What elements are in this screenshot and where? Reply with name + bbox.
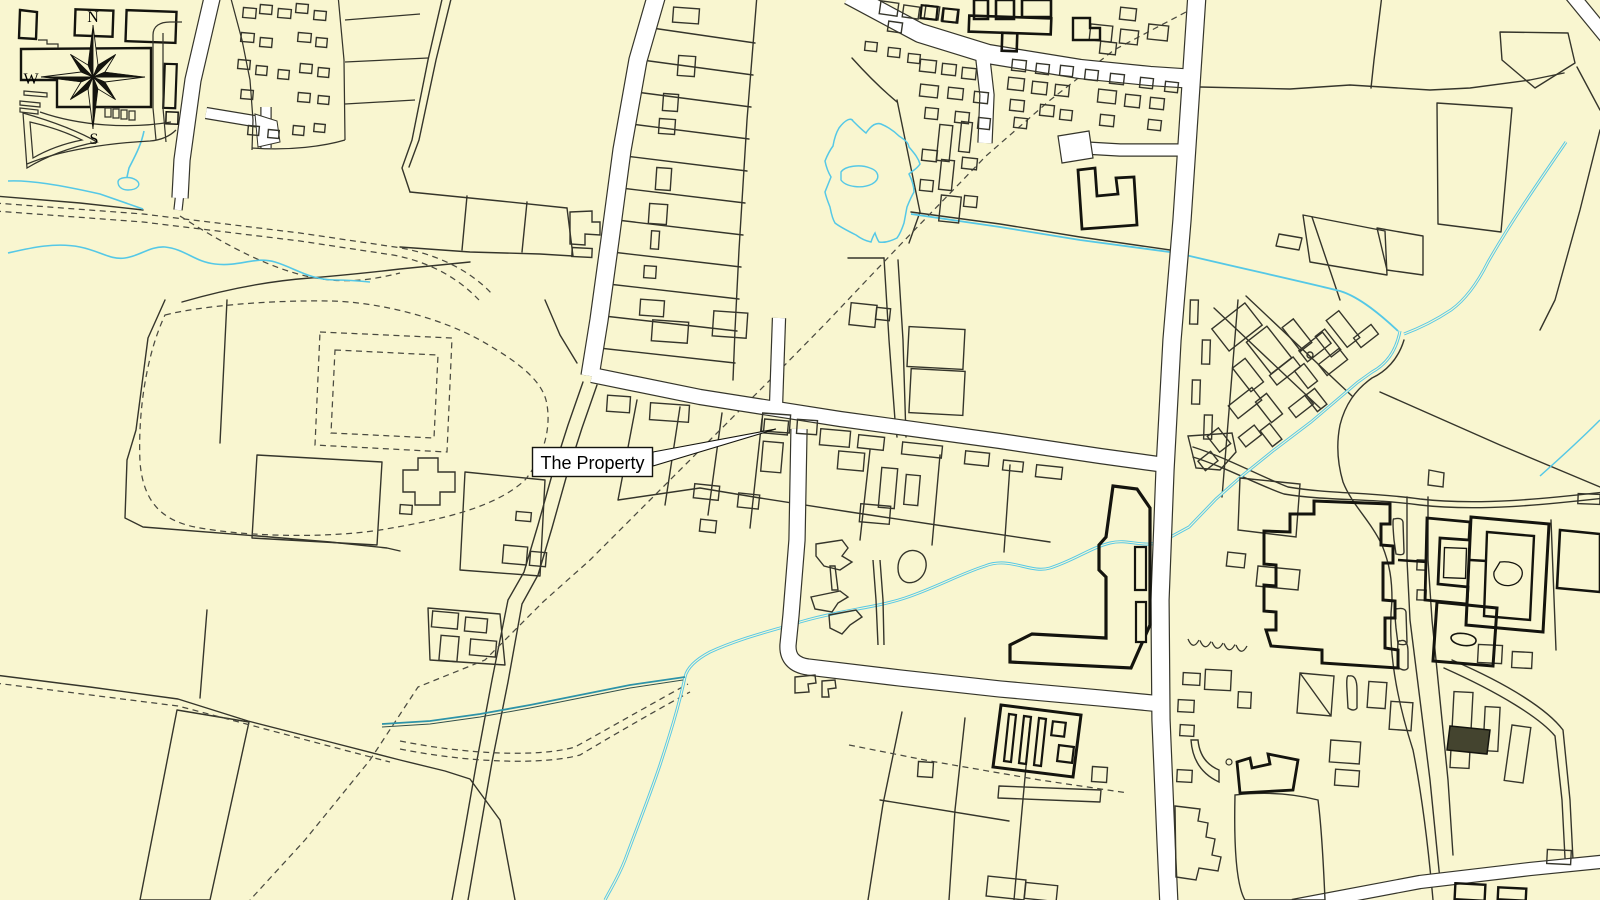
- svg-text:N: N: [87, 9, 99, 26]
- svg-text:W: W: [23, 71, 39, 88]
- svg-text:The Property: The Property: [540, 453, 644, 473]
- svg-text:S: S: [90, 131, 99, 148]
